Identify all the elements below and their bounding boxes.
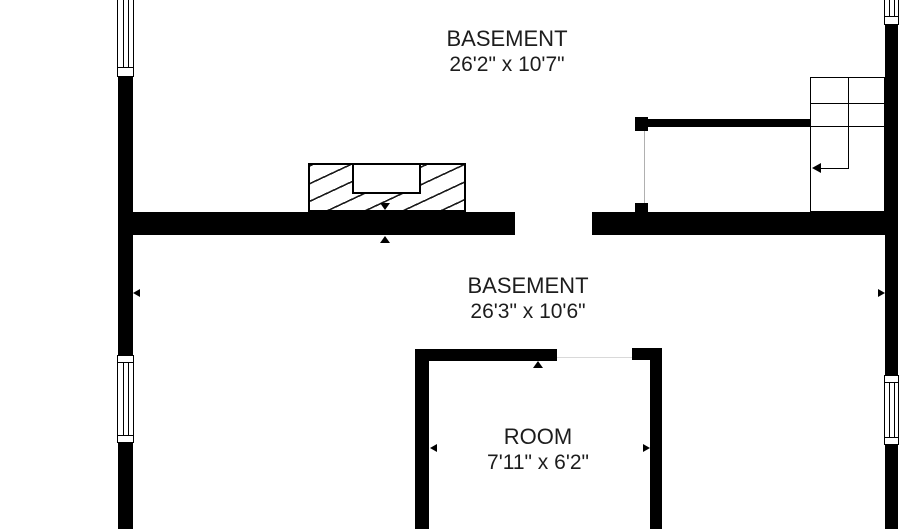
dimension-arrow-up-icon xyxy=(533,361,543,368)
room-dimensions: 7'11" x 6'2" xyxy=(487,450,589,476)
stair-direction-arrow-icon xyxy=(812,163,821,173)
window-frame-line xyxy=(885,16,898,17)
dimension-arrow-left-icon xyxy=(430,444,437,452)
middle-wall-left-segment xyxy=(118,212,515,235)
window-glass-lines xyxy=(123,0,129,67)
window-frame-line xyxy=(118,67,133,68)
stair-hall-wall xyxy=(647,119,810,127)
stair-run-line xyxy=(817,168,849,170)
window-frame-line xyxy=(118,435,133,436)
room-right-wall xyxy=(650,348,662,529)
staircase xyxy=(810,77,885,212)
room-left-wall xyxy=(415,349,429,529)
dimension-arrow-right-icon xyxy=(878,289,885,297)
room-name: BASEMENT xyxy=(467,273,588,299)
room-top-wall xyxy=(415,349,557,361)
floor-plan: BASEMENT 26'2" x 10'7" BASEMENT 26'3" x … xyxy=(0,0,900,529)
room-label-basement-lower: BASEMENT 26'3" x 10'6" xyxy=(467,273,588,325)
room-name: BASEMENT xyxy=(446,26,567,52)
left-exterior-wall-lower xyxy=(118,443,133,529)
room-doorway-line xyxy=(557,357,632,358)
room-label-basement-upper: BASEMENT 26'2" x 10'7" xyxy=(446,26,567,78)
window-top-right xyxy=(884,0,899,25)
fireplace-firebox xyxy=(352,163,421,194)
wall-opening-line xyxy=(644,131,645,203)
dimension-arrow-down-icon xyxy=(380,203,390,210)
room-dimensions: 26'3" x 10'6" xyxy=(467,299,588,325)
window-top-left xyxy=(117,0,134,77)
wall-opening-stub xyxy=(635,203,648,212)
right-exterior-wall-upper xyxy=(885,25,898,375)
dimension-arrow-up-icon xyxy=(380,236,390,243)
dimension-arrow-left-icon xyxy=(133,289,140,297)
window-glass-lines xyxy=(889,0,895,16)
room-label-room: ROOM 7'11" x 6'2" xyxy=(487,424,589,476)
stair-divider-line xyxy=(848,78,850,169)
window-bottom-right xyxy=(884,375,899,445)
right-exterior-wall-lower xyxy=(885,445,898,529)
stair-hall-wall-end-cap xyxy=(635,117,648,131)
window-frame-line xyxy=(885,437,898,438)
window-glass-lines xyxy=(123,363,129,435)
dimension-arrow-right-icon xyxy=(643,444,650,452)
middle-wall-right-segment xyxy=(592,212,898,235)
room-name: ROOM xyxy=(487,424,589,450)
window-glass-lines xyxy=(889,383,895,437)
room-dimensions: 26'2" x 10'7" xyxy=(446,52,567,78)
window-bottom-left xyxy=(117,355,134,443)
